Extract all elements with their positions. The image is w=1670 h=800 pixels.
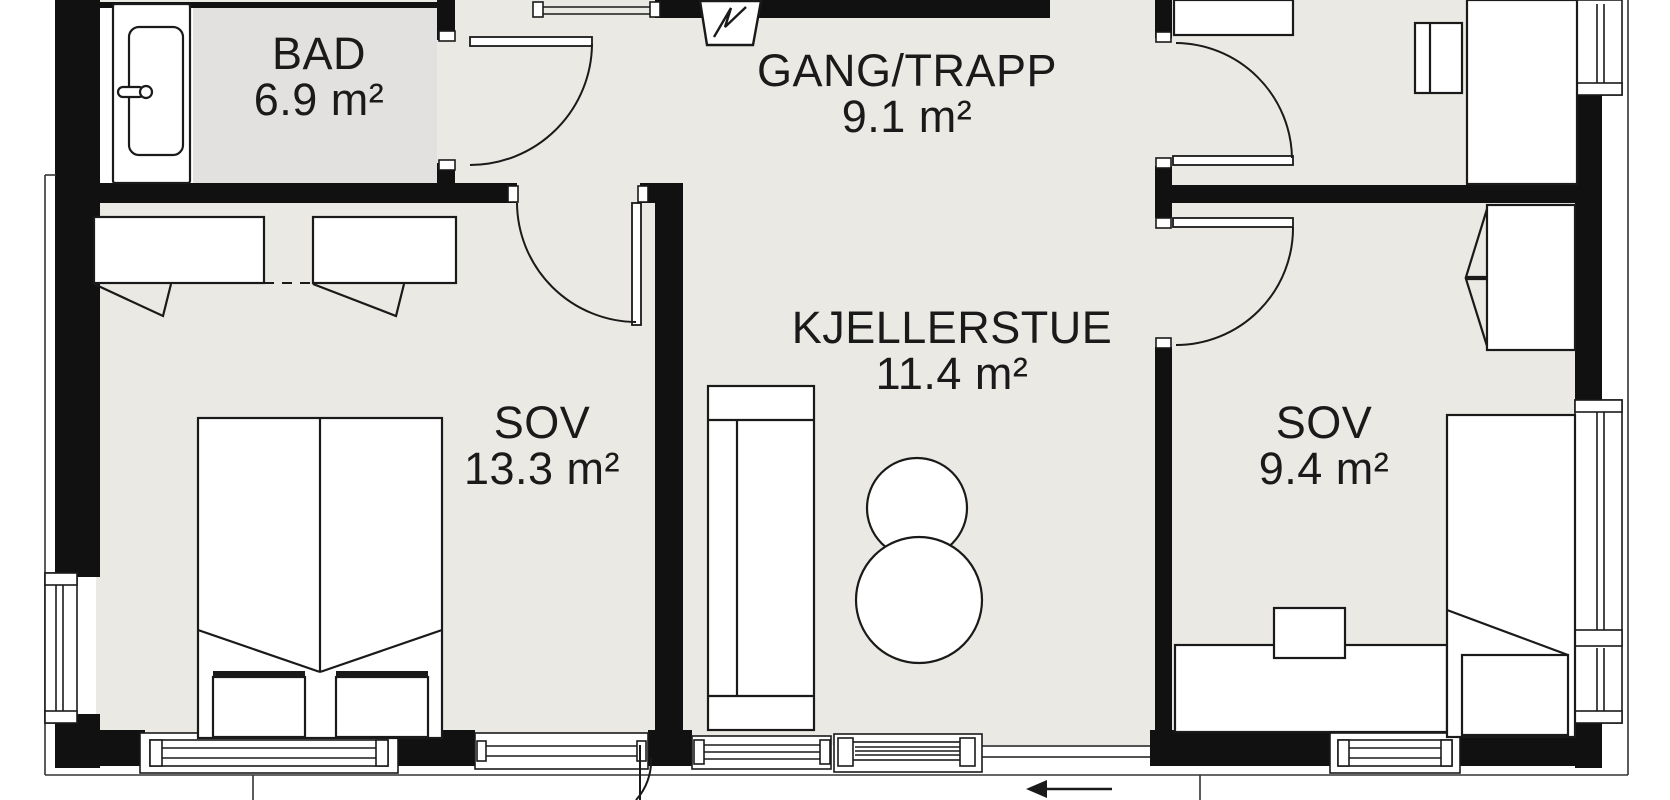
- desk-upper: [1467, 0, 1577, 184]
- room-area: 13.3 m²: [464, 446, 620, 492]
- bed-foot-box-1: [213, 677, 305, 737]
- window-bottom-stue-b: [834, 734, 982, 772]
- closet-upper: [1174, 0, 1293, 35]
- room-label-gang-trapp: GANG/TRAPP 9.1 m²: [757, 48, 1057, 140]
- window-left-wall: [45, 573, 77, 723]
- double-bed: [198, 418, 442, 738]
- room-name: SOV: [1276, 397, 1373, 448]
- room-area: 6.9 m²: [254, 77, 385, 123]
- wall-right-corner: [1575, 723, 1602, 768]
- electrical-panel-icon: [700, 1, 761, 45]
- wall-bottom-left: [55, 730, 145, 766]
- wall-horizontal-left: [55, 183, 517, 203]
- window-right-wall: [1575, 400, 1622, 723]
- room-label-sov-9: SOV 9.4 m²: [1259, 400, 1390, 492]
- bed-foot-box-2: [336, 677, 428, 737]
- wall-vertical-center: [655, 183, 683, 745]
- room-name: GANG/TRAPP: [757, 45, 1057, 96]
- window-bottom-sov2: [1330, 733, 1460, 773]
- bathtub: [113, 4, 190, 183]
- chair-upper: [1415, 23, 1462, 93]
- room-area: 11.4 m²: [792, 351, 1113, 397]
- sofa: [708, 386, 814, 730]
- room-label-kjellerstue: KJELLERSTUE 11.4 m²: [792, 305, 1113, 397]
- room-area: 9.1 m²: [757, 94, 1057, 140]
- window-bottom-stue-a: [692, 736, 831, 769]
- floor-plan: BAD 6.9 m² GANG/TRAPP 9.1 m² KJELLERSTUE…: [0, 0, 1670, 800]
- room-area: 9.4 m²: [1259, 446, 1390, 492]
- room-name: BAD: [272, 28, 366, 79]
- window-right-wall-top: [1575, 0, 1622, 95]
- wardrobe-sov2: [1487, 205, 1575, 350]
- wall-divider-bottom: [1155, 347, 1172, 745]
- bed-foot-chest: [1462, 655, 1568, 735]
- room-name: KJELLERSTUE: [792, 302, 1113, 353]
- wall-right-upper: [1575, 95, 1602, 400]
- round-table-large: [856, 537, 982, 663]
- entrance-arrow-icon: [1026, 780, 1112, 798]
- room-name: SOV: [494, 397, 591, 448]
- room-label-sov-13: SOV 13.3 m²: [464, 400, 620, 492]
- terrace-door-threshold: [475, 733, 651, 800]
- chair-sov2: [1274, 608, 1345, 658]
- wall-divider-mid: [1155, 166, 1172, 218]
- entrance-threshold: [982, 746, 1150, 757]
- wall-left: [55, 0, 100, 577]
- wall-horizontal-right: [1172, 185, 1575, 203]
- room-label-bad: BAD 6.9 m²: [254, 31, 385, 123]
- wall-bottom-3: [1150, 730, 1334, 766]
